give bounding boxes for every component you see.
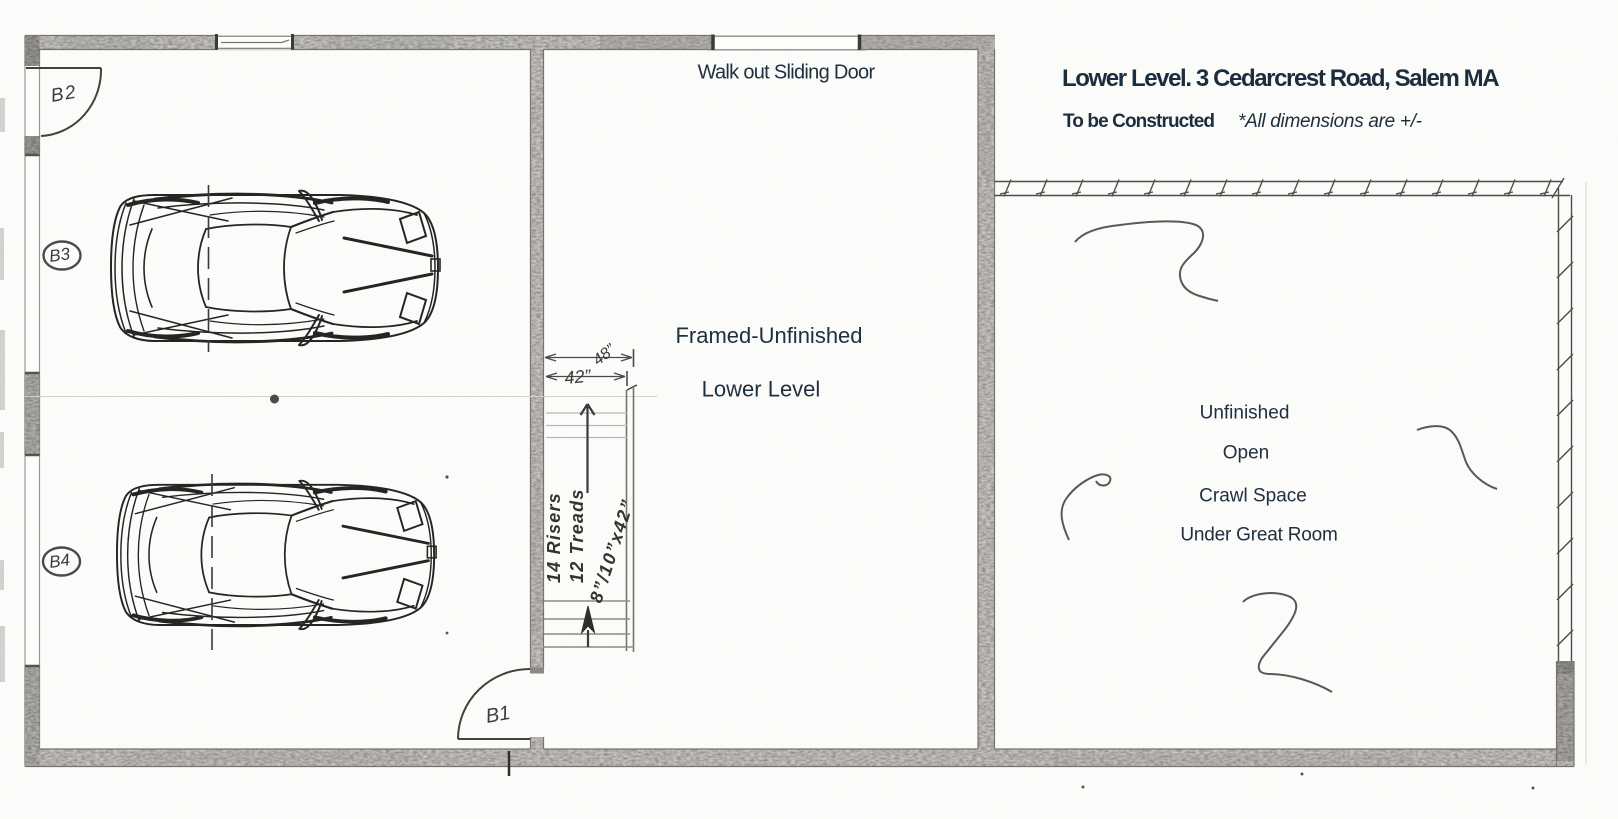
svg-text:B3: B3 — [48, 244, 72, 266]
svg-text:B2: B2 — [49, 82, 78, 107]
svg-text:To be Constructed: To be Constructed — [1063, 111, 1214, 132]
svg-text:B1: B1 — [484, 702, 512, 728]
svg-text:B4: B4 — [48, 550, 71, 572]
svg-text:Walk out Sliding Door: Walk out Sliding Door — [698, 62, 876, 84]
svg-text:Crawl Space: Crawl Space — [1199, 486, 1307, 507]
svg-text:Framed-Unfinished: Framed-Unfinished — [675, 323, 862, 348]
svg-text:Unfinished: Unfinished — [1200, 403, 1290, 424]
svg-text:Lower Level: Lower Level — [702, 377, 821, 402]
svg-text:Under Great Room: Under Great Room — [1180, 525, 1337, 546]
svg-text:Open: Open — [1223, 443, 1269, 464]
svg-text:*All dimensions are +/-: *All dimensions are +/- — [1238, 111, 1422, 132]
svg-text:12 Treads: 12 Treads — [567, 488, 587, 583]
svg-text:14 Risers: 14 Risers — [544, 492, 564, 583]
svg-text:42”: 42” — [564, 366, 593, 388]
svg-text:Lower Level. 3 Cedarcrest Road: Lower Level. 3 Cedarcrest Road, Salem MA — [1062, 65, 1499, 92]
